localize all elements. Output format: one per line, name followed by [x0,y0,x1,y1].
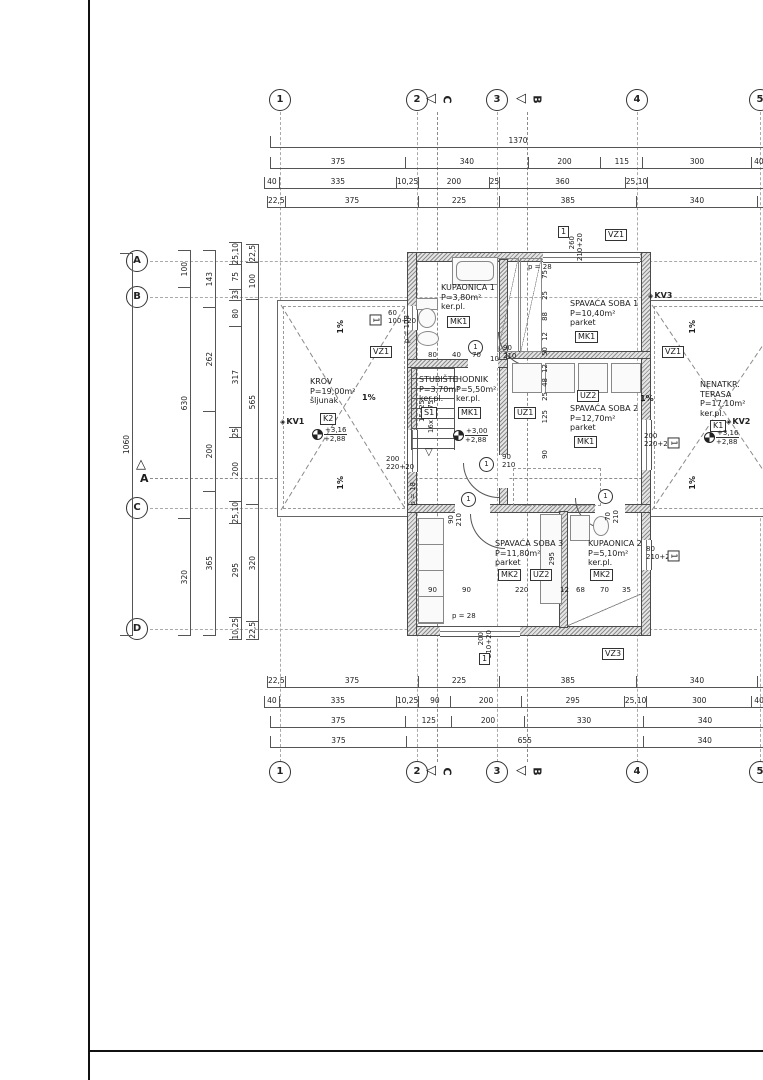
mid-dim-88: 88 [541,312,549,321]
tag-mk2-spavaca3: MK2 [498,569,521,581]
shower-panel-1 [497,258,519,352]
grid-bubble-4-top: 4 [626,89,648,111]
tag-mk1-hodnik: MK1 [458,407,481,419]
mid-dim-25b: 25 [541,392,549,401]
bathtub-inner [456,261,494,281]
section-flag-c-top-icon: ◁ [426,92,436,105]
dim-row-top-total: 1370 [270,136,763,148]
door-tag-soba3: 1 [461,492,476,507]
note-p108: p = 108 [403,315,411,343]
section-flag-b-top: B [531,95,544,103]
bottom-dim-35: 35 [622,586,631,594]
room-label-spavaca1: SPAVAĆA SOBA 1P=10,40m²parket [570,299,638,328]
grid-bubble-1-bottom: 1 [269,761,291,783]
grid-line-4 [637,112,638,762]
grid-bubble-5-bottom: 5 [749,761,763,783]
tag-vz3: VZ3 [602,648,624,660]
window-bottom-width: 200 [477,632,485,645]
door-size-stubiste: 90210 [502,453,515,469]
slope-krov-bottom: 1% [336,476,346,490]
window-tag-right: 1 [668,437,680,448]
dim-row-bottom-1: 22,5 375 225 385 340 [267,676,763,688]
dim-col-left-4: 25,10 75 33 80 317 25 200 25,10 295 10,2… [229,242,242,640]
bottom-dim-90a: 90 [428,586,437,594]
door-soba3-height: 210 [455,513,463,526]
grid-line-3 [497,112,498,762]
tag-vz1-top: VZ1 [605,229,627,241]
window-top-width: 260 [568,236,576,249]
level-hodnik: +3,00+2,88 [465,427,488,444]
section-flag-b-bottom-icon: ◁ [516,764,526,777]
dim-value: 1370 [508,136,527,145]
window-tag-kup2: 1 [668,550,680,561]
section-flag-a-icon: △ [136,458,146,471]
toilet-bowl-kupaonica1 [418,308,436,328]
door-kup2-width: 70 [604,512,612,521]
marker-kv2: KV2 [726,417,750,426]
inner-dim-80: 80 [428,351,437,359]
sheet-border-left [88,0,90,1080]
level-dot-krov [312,429,323,440]
closet-unit-2 [545,363,575,393]
tag-uz2-spavaca3: UZ2 [530,569,552,581]
stair-direction-arrow: ▽ [425,446,433,459]
bottom-dim-68: 68 [576,586,585,594]
mid-dim-75: 75 [541,270,549,279]
mid-dim-12b: 12 [541,364,549,373]
slope-terasa: 1% [640,394,654,404]
sink-kupaonica2 [570,515,590,541]
tag-s1: S1 [421,407,437,419]
tag-k2: K2 [320,413,336,425]
room-label-terasa: NENATKR.TERASAP=17,10m²ker.pl. [700,380,745,418]
note-p28-bottom: p = 28 [452,612,476,620]
slope-krov: 1% [362,393,376,403]
section-flag-a: A [140,474,149,484]
dim-col-left-total: 1060 [120,253,133,636]
mid-dim-125: 125 [541,410,549,423]
inner-dim-70: 70 [472,351,481,359]
tag-vz1-right: VZ1 [662,346,684,358]
grid-bubble-3-top: 3 [486,89,508,111]
closet-unit-4 [611,363,641,393]
section-flag-c-top: C [441,95,454,103]
grid-bubble-5-top: 5 [749,89,763,111]
window-left-size: 200220+20 [386,455,414,471]
mid-dim-25: 25 [541,291,549,300]
tag-vz1-left: VZ1 [370,346,392,358]
dim-row-top-4: 22,5 375 225 385 340 [267,196,763,208]
shower-panel-2 [520,258,542,352]
dim-row-top-3: 40 335 10,25 200 25 360 25,10 [264,177,763,189]
inner-dim-40: 40 [452,351,461,359]
tag-mk1-spavaca1: MK1 [575,331,598,343]
level-dot-terasa [704,432,715,443]
room-label-kupaonica2: KUPAONICA 2P=5,10m²ker.pl. [588,539,642,568]
section-line-b [527,112,528,762]
grid-bubble-3-bottom: 3 [486,761,508,783]
mid-dim-50: 50 [541,347,549,356]
shower-kupaonica2 [567,594,641,626]
window-tag-small-left: 1 [370,314,382,325]
dim-row-top-2: 375 340 200 115 300 40 [270,157,763,169]
window-top-260 [543,252,640,263]
room-label-kupaonica1: KUPAONICA 1P=3,80m²ker.pl. [441,283,495,312]
bottom-dim-220: 220 [515,586,528,594]
section-flag-b-top-icon: ◁ [516,92,526,105]
tag-uz2-spavaca2: UZ2 [577,390,599,402]
room-label-spavaca2: SPAVAĆA SOBA 2P=12,70m²parket [570,404,638,433]
section-flag-b-bottom: B [531,767,544,775]
door-tag-kupaonica2: 1 [598,489,613,504]
dim-uz2-height: 295 [548,552,556,565]
mid-dim-90: 90 [541,450,549,459]
tag-mk2-kupaonica2: MK2 [590,569,613,581]
closet-unit-1 [512,363,542,393]
marker-kv3: KV3 [648,291,672,300]
level-dot-hodnik [453,430,464,441]
marker-kv1: KV1 [280,417,304,426]
wardrobe-soba3 [418,518,444,624]
sink-kupaonica1 [417,331,439,346]
door-soba3-width: 90 [447,515,455,524]
room-label-hodnik: HODNIKP=5,50m²ker.pl. [456,375,496,404]
tag-mk1-spavaca2: MK1 [574,436,597,448]
dim-row-bottom-3: 375 125 200 330 340 [270,716,763,728]
level-terasa: +3,16+2,88 [716,429,739,446]
slope-terasa-bottom: 1% [688,476,698,490]
dim-col-left-3: 143 262 200 365 [203,250,216,636]
bottom-dim-12: 12 [560,586,569,594]
dim-row-bottom-4: 375 655 340 [270,736,763,748]
closet-unit-3 [578,363,608,393]
level-krov: +3,16+2,88 [324,426,347,443]
inner-dim-10: 10 [490,355,499,363]
bottom-dim-90b: 90 [462,586,471,594]
note-p18: p = 18 [409,482,417,506]
slope-krov-top: 1% [336,320,346,334]
bottom-dim-70: 70 [600,586,609,594]
mid-dim-12: 12 [541,332,549,341]
floor-plan-sheet: 1 2 3 4 5 ◁ C ◁ B 1 2 3 4 5 ◁ C ◁ B A B … [0,0,763,1080]
window-top-height: 210+20 [576,233,584,261]
door-tag-stubiste: 1 [479,457,494,472]
section-flag-c-bottom: C [441,767,454,775]
tag-uz1: UZ1 [514,407,536,419]
door-kup2-height: 210 [612,510,620,523]
mid-dim-48: 48 [541,378,549,387]
slope-terasa-top: 1% [688,320,698,334]
grid-bubble-1-top: 1 [269,89,291,111]
grid-bubble-2-bottom: 2 [406,761,428,783]
dim-col-left-2: 100 630 320 [178,250,191,636]
window-tag-bottom: 1 [479,653,490,665]
room-label-stubiste: STUBIŠTEP=3,70m²ker.pl. [419,375,459,404]
door-size-kupaonica1: 90210 [503,344,516,360]
dim-col-left-5: 22,5 100 565 320 22,5 [246,244,259,640]
tag-mk1-kupaonica1: MK1 [447,316,470,328]
section-flag-c-bottom-icon: ◁ [426,764,436,777]
room-label-krov: KROVP=19,00m²šljunak [310,377,355,406]
void-dashed-rect [513,468,601,506]
grid-bubble-4-bottom: 4 [626,761,648,783]
dim-row-bottom-2: 40 335 10,25 90 200 295 25,10 300 40 [264,696,763,708]
sheet-border-bottom [88,1050,763,1052]
grid-bubble-2-top: 2 [406,89,428,111]
